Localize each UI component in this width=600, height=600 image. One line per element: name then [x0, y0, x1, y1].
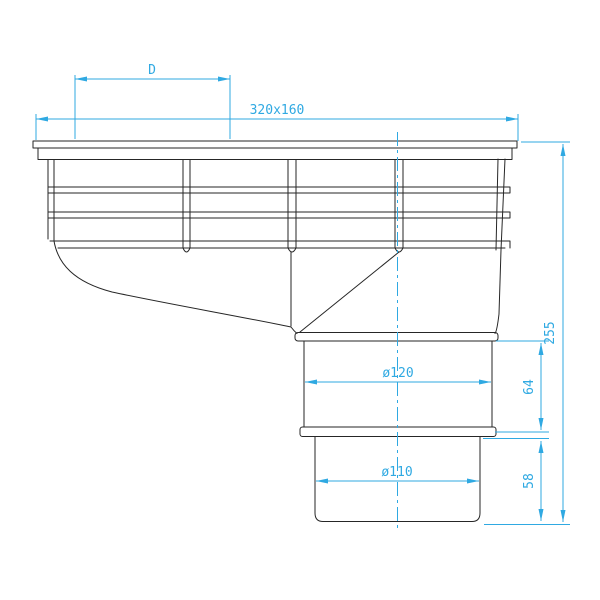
body-right-wall	[495, 250, 501, 334]
funnel-diagonal-wall	[300, 252, 399, 332]
dimension-label-socket-diameter: ø120	[382, 366, 413, 381]
technical-drawing-page: D 320x160 255 ø120 64	[0, 0, 600, 600]
grate-horizontal-rails	[48, 187, 510, 248]
dimension-label-d: D	[148, 63, 156, 78]
dimension-grate-size: 320x160	[36, 103, 518, 141]
arrowhead-left	[305, 380, 317, 385]
body-profile	[54, 241, 501, 334]
arrowhead-right	[467, 479, 479, 484]
dimension-outlet-height: 58	[483, 439, 549, 522]
arrowhead-right	[479, 380, 491, 385]
dimension-annotations: D 320x160 255 ø120 64	[36, 63, 570, 532]
dimension-label-outlet-height: 58	[522, 473, 537, 489]
arrowhead-right	[506, 117, 518, 122]
dimension-outlet-diameter: ø110	[316, 465, 479, 484]
dimension-label-socket-height: 64	[522, 379, 537, 395]
product-outline	[33, 141, 517, 522]
socket-collar	[295, 333, 498, 342]
arrowhead-up	[539, 441, 544, 453]
gully-technical-drawing: D 320x160 255 ø120 64	[0, 0, 600, 600]
arrowhead-left	[75, 77, 87, 82]
outlet-section	[295, 333, 498, 522]
body-left-curve	[54, 241, 297, 334]
dimension-label-outlet-diameter: ø110	[381, 465, 412, 480]
dimension-socket-height: 64	[495, 341, 549, 432]
grate-lid	[33, 141, 517, 160]
dimension-label-grate-size: 320x160	[250, 103, 305, 118]
arrowhead-left	[36, 117, 48, 122]
dimension-socket-diameter: ø120	[305, 366, 491, 385]
grate-vertical-bars	[48, 159, 505, 250]
arrowhead-left	[316, 479, 328, 484]
grate-divider-tips	[183, 248, 403, 252]
arrowhead-down	[539, 418, 544, 430]
lid-top-plate	[33, 141, 517, 148]
grate-grid	[48, 159, 510, 252]
arrowhead-down	[561, 510, 566, 522]
lid-skirt	[38, 148, 512, 160]
arrowhead-down	[539, 509, 544, 521]
arrowhead-up	[561, 144, 566, 156]
arrowhead-right	[218, 77, 230, 82]
dimension-d: D	[75, 63, 230, 139]
